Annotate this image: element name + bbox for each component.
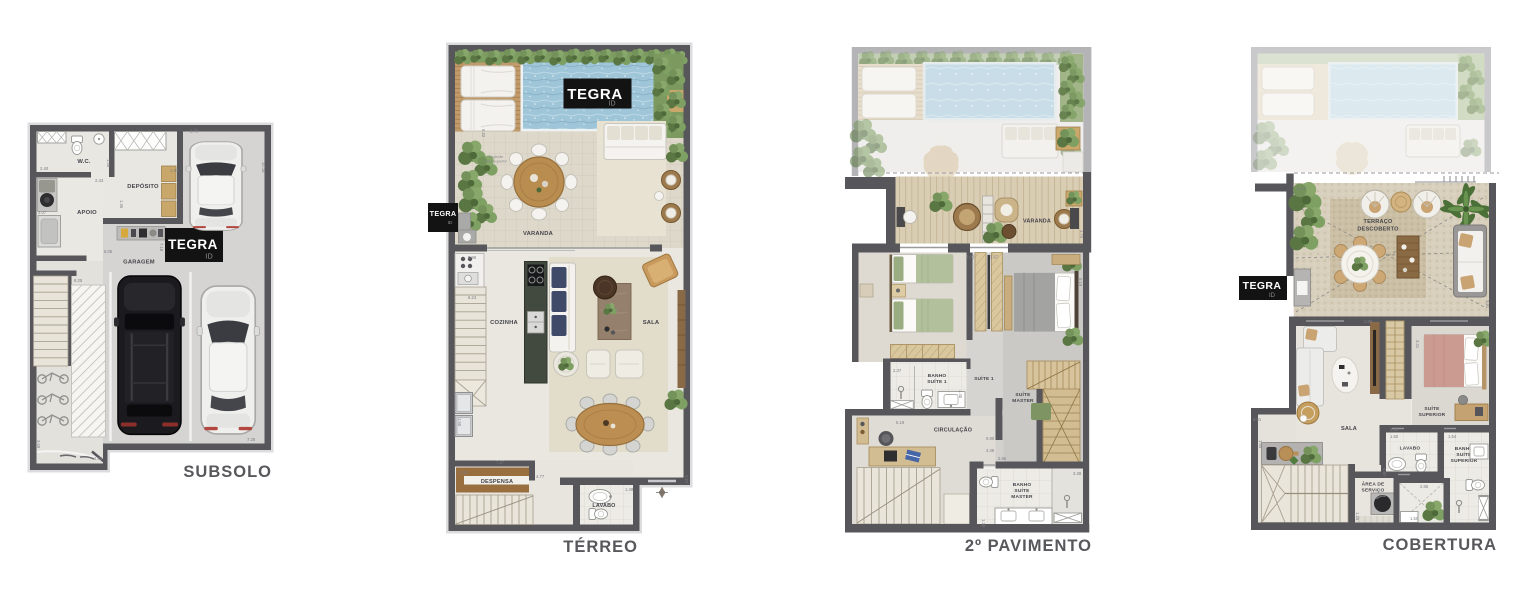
- svg-text:1.49: 1.49: [625, 487, 634, 492]
- svg-text:1.55: 1.55: [1258, 440, 1263, 449]
- svg-text:TEGRA: TEGRA: [1243, 280, 1282, 292]
- svg-text:1.30: 1.30: [981, 519, 986, 528]
- svg-text:3.00: 3.00: [966, 255, 975, 260]
- svg-text:ID: ID: [448, 220, 453, 226]
- svg-text:SALA: SALA: [1341, 426, 1357, 432]
- svg-text:5.19: 5.19: [1078, 278, 1083, 287]
- svg-text:LAVABO: LAVABO: [1400, 446, 1421, 452]
- svg-text:7.27: 7.27: [496, 460, 505, 465]
- svg-text:2º PAVIMENTO: 2º PAVIMENTO: [965, 537, 1092, 555]
- svg-text:MASTER: MASTER: [1011, 494, 1033, 500]
- svg-text:2.85: 2.85: [1420, 484, 1429, 489]
- svg-text:6.22: 6.22: [481, 129, 486, 138]
- svg-text:3.38: 3.38: [1073, 471, 1082, 476]
- svg-text:2.38: 2.38: [459, 470, 468, 475]
- svg-text:7.18: 7.18: [159, 243, 164, 252]
- svg-text:ID: ID: [609, 101, 616, 108]
- svg-text:SUPERIOR: SUPERIOR: [1419, 412, 1446, 418]
- svg-text:3.67: 3.67: [990, 255, 999, 260]
- svg-text:3.09: 3.09: [36, 440, 41, 449]
- svg-text:W.C.: W.C.: [77, 159, 91, 165]
- svg-text:6.24: 6.24: [468, 295, 477, 300]
- svg-text:4.48: 4.48: [986, 448, 995, 453]
- svg-text:1.50: 1.50: [1390, 434, 1399, 439]
- svg-text:2.40: 2.40: [40, 166, 49, 171]
- svg-text:0.90: 0.90: [986, 436, 995, 441]
- svg-text:COBERTURA: COBERTURA: [1383, 536, 1497, 554]
- svg-text:ID: ID: [205, 252, 213, 261]
- svg-text:BANHO: BANHO: [928, 373, 947, 379]
- svg-text:1.54: 1.54: [1448, 434, 1457, 439]
- svg-text:4.87: 4.87: [1382, 468, 1387, 477]
- svg-text:2.75: 2.75: [190, 129, 199, 134]
- svg-text:2.06: 2.06: [94, 456, 103, 461]
- svg-text:ÁREA DE: ÁREA DE: [1362, 481, 1385, 488]
- svg-text:Projeção: Projeção: [489, 155, 503, 159]
- svg-text:6.25: 6.25: [74, 278, 83, 283]
- svg-text:GARAGEM: GARAGEM: [123, 260, 155, 266]
- svg-text:3.91: 3.91: [1485, 300, 1490, 309]
- svg-text:DESPENSA: DESPENSA: [481, 479, 513, 485]
- svg-text:SUBSOLO: SUBSOLO: [183, 463, 272, 481]
- svg-text:5.96: 5.96: [468, 255, 477, 260]
- svg-text:LAVABO: LAVABO: [592, 503, 615, 509]
- svg-text:7.28: 7.28: [247, 437, 256, 442]
- svg-text:1.74: 1.74: [1079, 230, 1084, 239]
- svg-text:COZINHA: COZINHA: [490, 320, 518, 326]
- svg-text:2.88: 2.88: [1364, 319, 1373, 324]
- svg-text:3.41: 3.41: [1415, 340, 1420, 349]
- svg-text:TERRAÇO: TERRAÇO: [1363, 219, 1393, 225]
- svg-text:SALA: SALA: [643, 320, 660, 326]
- svg-text:5.05: 5.05: [104, 249, 113, 254]
- svg-text:1.40: 1.40: [958, 390, 963, 399]
- svg-text:10.18: 10.18: [261, 162, 266, 173]
- svg-text:1.25: 1.25: [1355, 512, 1360, 521]
- svg-text:APOIO: APOIO: [77, 210, 97, 216]
- svg-text:1.35: 1.35: [106, 159, 111, 168]
- svg-text:1.50: 1.50: [1410, 516, 1419, 521]
- svg-text:MASTER: MASTER: [1012, 398, 1034, 404]
- svg-text:çeito superior: çeito superior: [485, 160, 507, 164]
- svg-text:TÉRREO: TÉRREO: [563, 537, 638, 556]
- svg-text:1.83: 1.83: [170, 168, 179, 173]
- svg-text:VARANDA: VARANDA: [1023, 219, 1051, 225]
- svg-text:3.22: 3.22: [1390, 427, 1399, 432]
- svg-text:1.55: 1.55: [457, 418, 462, 427]
- svg-text:CIRCULAÇÃO: CIRCULAÇÃO: [934, 427, 972, 434]
- svg-text:2.43: 2.43: [95, 178, 104, 183]
- svg-text:4.77: 4.77: [536, 474, 545, 479]
- svg-text:DESCOBERTO: DESCOBERTO: [1357, 227, 1399, 233]
- svg-text:TEGRA: TEGRA: [430, 209, 457, 218]
- svg-text:DEPÓSITO: DEPÓSITO: [127, 182, 159, 190]
- svg-text:1.36: 1.36: [119, 200, 124, 209]
- svg-text:7.27: 7.27: [684, 475, 689, 484]
- svg-text:5.19: 5.19: [896, 420, 905, 425]
- svg-text:BANHO: BANHO: [1013, 482, 1032, 488]
- svg-text:2.37: 2.37: [893, 368, 902, 373]
- svg-text:VARANDA: VARANDA: [523, 231, 554, 237]
- svg-text:ID: ID: [1269, 293, 1276, 299]
- svg-text:2.07: 2.07: [38, 210, 47, 215]
- svg-text:TEGRA: TEGRA: [168, 237, 218, 252]
- svg-text:2.65: 2.65: [998, 456, 1007, 461]
- svg-text:3.91: 3.91: [1253, 417, 1262, 422]
- svg-text:6.19: 6.19: [1297, 186, 1306, 191]
